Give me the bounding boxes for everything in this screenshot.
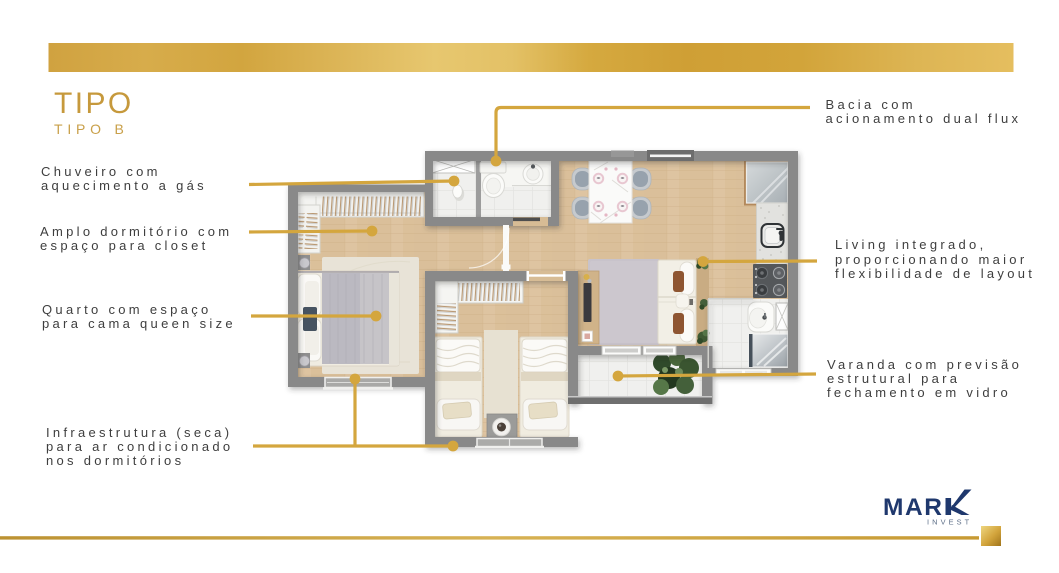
svg-text:INVEST: INVEST xyxy=(927,518,972,527)
